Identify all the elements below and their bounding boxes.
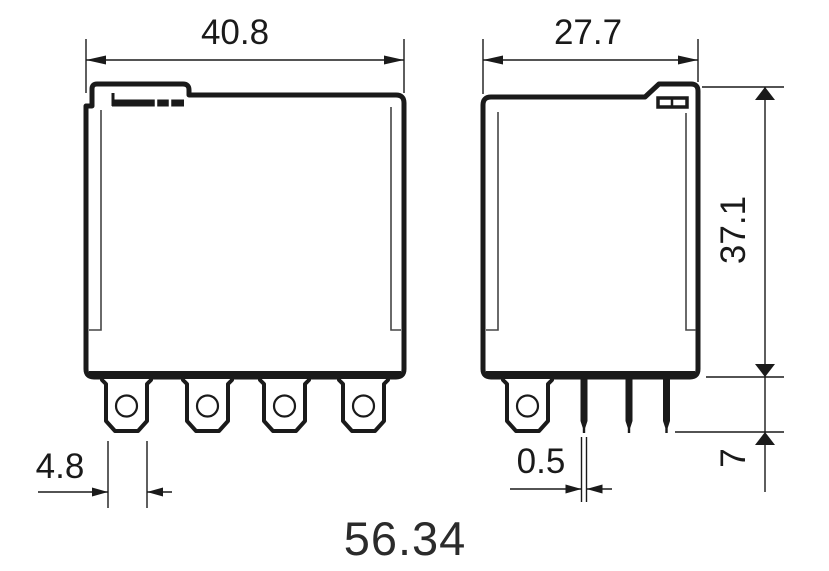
dim-front-width-arrow-left [86,56,106,65]
dim-blade-pin-width: 4.8 [36,441,172,508]
dim-label-blade-pin-width: 4.8 [36,447,85,486]
side-body-outline [483,84,698,377]
front-pin-hole-1 [116,396,137,417]
dim-blade-width-arrow-left [92,488,108,497]
side-pin-hole [517,396,538,417]
dim-body-height-arrow-top [755,87,775,100]
front-pin-hole-2 [197,396,218,417]
dim-label-pin-length: 7 [714,448,753,467]
dim-pin-length-arrow [755,432,775,445]
dim-body-height: 37.1 [702,87,784,492]
front-view [86,84,404,431]
dim-label-front-width: 40.8 [201,13,269,52]
drawing-svg: 40.8 27.7 37.1 7 4.8 [0,0,829,571]
dim-label-pin-thickness: 0.5 [517,442,566,481]
dim-front-width: 40.8 [86,13,404,93]
dim-side-width-arrow-left [483,56,503,65]
dim-pin-thickness-arrow-left [566,485,582,494]
dim-body-height-arrow-bottom [755,364,775,377]
front-pin-hole-4 [353,396,374,417]
side-thin-pin-2 [626,377,633,433]
dim-front-width-arrow-right [384,56,404,65]
dim-pin-thickness: 0.5 [510,437,612,502]
dim-label-side-width: 27.7 [554,13,622,52]
dim-pin-thickness-arrow-right [587,485,603,494]
front-body-outline [86,84,404,377]
part-number: 56.34 [344,512,467,565]
dim-label-body-height: 37.1 [714,196,753,264]
front-pin-hole-3 [274,396,295,417]
side-thin-pin-3 [663,377,670,433]
side-thin-pin-1 [581,377,588,433]
side-view [483,84,698,433]
relay-dimension-drawing: 40.8 27.7 37.1 7 4.8 [0,0,829,571]
dim-pin-length: 7 [675,432,784,468]
dim-side-width-arrow-right [678,56,698,65]
dim-blade-width-arrow-right [147,488,163,497]
